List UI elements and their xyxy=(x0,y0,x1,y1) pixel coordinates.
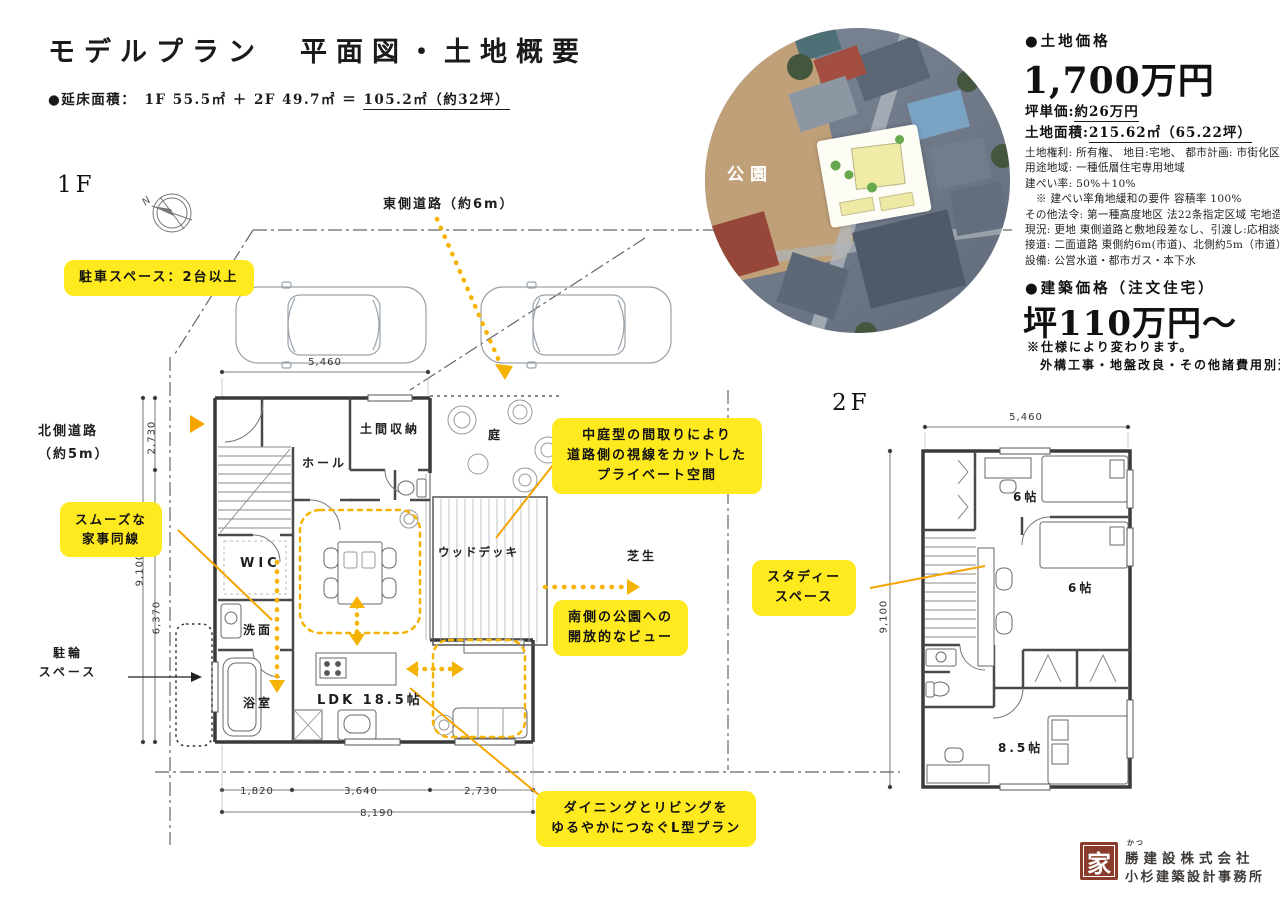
dim-2f-left: 9,100 xyxy=(879,597,890,637)
aerial-model-drive xyxy=(839,197,875,217)
aerial-model-tree xyxy=(830,160,842,172)
dim-1f-btotal: 8,190 xyxy=(347,808,407,819)
callout-kaji: スムーズな 家事同線 xyxy=(60,502,162,557)
aerial-model-tree xyxy=(844,170,854,180)
callout-ltype: ダイニングとリビングを ゆるやかにつなぐL型プラン xyxy=(536,791,756,847)
room-garden-label: 庭 xyxy=(488,426,500,443)
flyer-page: モデルプラン 平面図・土地概要 ●延床面積： 1F 55.5㎡ ＋ 2F 49.… xyxy=(0,0,1280,903)
room-hall-label: ホール xyxy=(302,454,347,471)
callout-view: 南側の公園への 開放的なビュー xyxy=(553,600,688,656)
callout-private: 中庭型の間取りにより 道路側の視線をカットした プライベート空間 xyxy=(552,418,762,494)
aerial-model-house xyxy=(851,142,906,190)
aerial-model-tree xyxy=(894,134,904,144)
room-2f-1-label: 6帖 xyxy=(1013,488,1039,505)
room-bath-label: 浴室 xyxy=(243,694,273,711)
room-senmen-label: 洗面 xyxy=(243,621,273,638)
dim-1f-b1: 1,820 xyxy=(227,786,287,797)
aerial-tree xyxy=(991,144,1010,168)
entrance-arrow-icon xyxy=(190,415,205,433)
aerial-tree xyxy=(855,322,877,333)
aerial-model-drive xyxy=(879,192,915,212)
aerial-roof xyxy=(949,182,1008,236)
room-wic-label: WIC xyxy=(240,556,281,571)
aerial-photo: 公園 xyxy=(705,28,1010,333)
car-top-view xyxy=(236,282,426,368)
aerial-roof-large xyxy=(852,209,966,308)
dim-1f-top: 5,460 xyxy=(295,357,355,368)
dim-2f-top: 5,460 xyxy=(996,412,1056,423)
wood-deck xyxy=(433,497,547,645)
road-north-line2: （約5m） xyxy=(38,443,110,466)
company-logo-icon: 家 xyxy=(1080,842,1118,880)
floor-2f-label: 2F xyxy=(832,390,871,416)
dim-1f-left1: 2,730 xyxy=(147,418,158,458)
floor-1f-label: 1F xyxy=(57,172,96,198)
callout-study: スタディー スペース xyxy=(752,560,856,616)
callout-parking: 駐車スペース：2台以上 xyxy=(64,260,254,296)
lawn-label: 芝生 xyxy=(627,547,657,564)
room-ldk-label: LDK 18.5帖 xyxy=(317,689,423,708)
dim-1f-left3: 6,370 xyxy=(152,598,163,638)
road-north-label: 北側道路 （約5m） xyxy=(38,420,110,467)
park-label: 公園 xyxy=(727,160,773,185)
aerial-tree xyxy=(787,54,813,80)
road-north-line1: 北側道路 xyxy=(38,420,110,443)
aerial-parcel xyxy=(816,124,932,228)
room-2f-3-label: 8.5帖 xyxy=(998,739,1043,756)
dim-1f-b3: 2,730 xyxy=(451,786,511,797)
room-deck-label: ウッドデッキ xyxy=(438,544,519,560)
bicycle-space-label: 駐輪 スペース xyxy=(28,644,108,681)
aerial-tree xyxy=(957,70,979,92)
compass-icon xyxy=(152,194,192,232)
aerial-model-tree xyxy=(866,182,878,194)
room-doma-label: 土間収納 xyxy=(360,420,420,437)
road-east-label: 東側道路（約6m） xyxy=(383,193,515,212)
room-2f-2-label: 6帖 xyxy=(1068,579,1094,596)
dim-1f-b2: 3,640 xyxy=(331,786,391,797)
aerial-roof xyxy=(929,137,992,190)
